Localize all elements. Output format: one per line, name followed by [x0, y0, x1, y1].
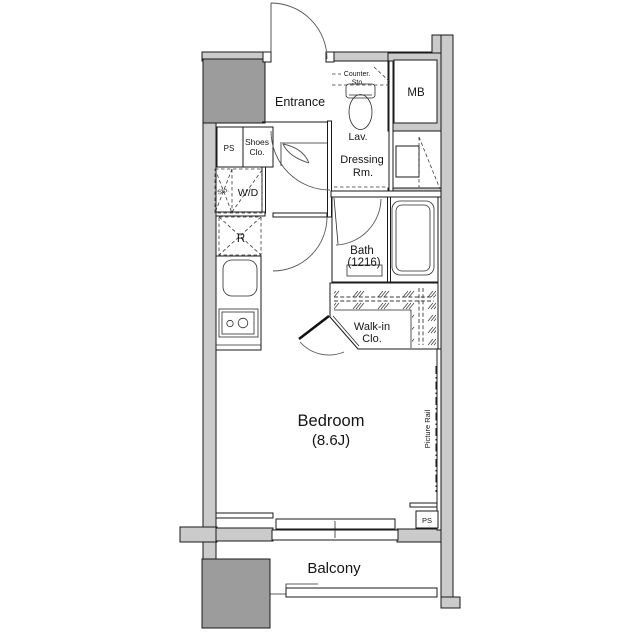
- dressing-room-label-2: Rm.: [353, 167, 373, 179]
- wic-hatch-right: [412, 310, 436, 347]
- bath-unit: [332, 197, 438, 282]
- void-dashed-lines: [419, 137, 440, 191]
- wic-door-leaf: [299, 316, 329, 339]
- wall-bottom-left: [216, 528, 273, 541]
- bedroom-south-wall: [216, 513, 273, 518]
- bath-label-2: (1216): [347, 257, 380, 269]
- hall-west-wall: [262, 167, 266, 213]
- wall-under-wd: [216, 212, 265, 216]
- bath-label-1: Bath: [350, 245, 374, 257]
- wic-hatch-top: [334, 286, 436, 310]
- dressing-room-label-1: Dressing: [340, 154, 383, 166]
- dressing-door-leaf: [283, 144, 309, 163]
- walk-in-closet-label-1: Walk-in: [354, 321, 390, 333]
- refrigerator-label: R: [237, 233, 245, 245]
- entrance-door-swing: [271, 3, 327, 59]
- void-equipment-box: [396, 146, 419, 177]
- wall-right-foot: [441, 597, 460, 608]
- lavatory-label: Lav.: [348, 131, 367, 143]
- shoes-closet-label-2: Clo.: [249, 147, 264, 157]
- walk-in-closet-label-2: Clo.: [362, 333, 382, 345]
- entrance-label: Entrance: [275, 95, 325, 109]
- pipe-space-lower-label: PS: [422, 516, 432, 525]
- wall-left-fin: [180, 527, 217, 542]
- hall-dressing-wall: [328, 121, 332, 217]
- bath-outline: [332, 197, 438, 282]
- wall-bottom-right: [397, 529, 441, 542]
- bedroom-label-1: Bedroom: [298, 412, 365, 430]
- washer-dryer-label: W/D: [238, 187, 259, 199]
- wic-door-swing: [300, 342, 344, 355]
- hall-door-swing: [273, 217, 327, 271]
- shoes-closet-label-1: Shoes: [245, 137, 269, 147]
- dressing-bath-wall: [331, 191, 441, 197]
- hall-door-leaf: [273, 213, 327, 217]
- ps-step-wall: [410, 503, 437, 507]
- counter-storage-label-1: Counter.: [344, 71, 371, 78]
- wall-right: [441, 35, 453, 597]
- storage-label: Sto.: [217, 186, 230, 196]
- bedroom-east-wall: [437, 349, 441, 530]
- walk-in-closet: [330, 283, 438, 349]
- balcony-label: Balcony: [307, 560, 361, 577]
- block-bottom-left: [202, 559, 270, 628]
- picture-rail-label: Picture Rail: [423, 410, 432, 449]
- meter-box-label: MB: [407, 87, 425, 99]
- dressing-east-wall: [389, 61, 393, 191]
- balcony-rail: [286, 588, 437, 597]
- window-sash-inner: [276, 519, 395, 529]
- block-top-left: [203, 59, 265, 123]
- wall-left: [203, 122, 216, 560]
- toilet-bowl: [349, 95, 372, 130]
- bedroom-label-2: (8.6J): [312, 432, 350, 449]
- floor-plan: Entrance MB PS Shoes Clo. Sto. W/D Count…: [0, 0, 640, 640]
- dressing-door-swing: [271, 131, 330, 190]
- pipe-space-upper-label: PS: [224, 144, 235, 153]
- entrance-door-jamb-left: [263, 52, 271, 62]
- counter-storage-label-2: Sto.: [352, 80, 365, 87]
